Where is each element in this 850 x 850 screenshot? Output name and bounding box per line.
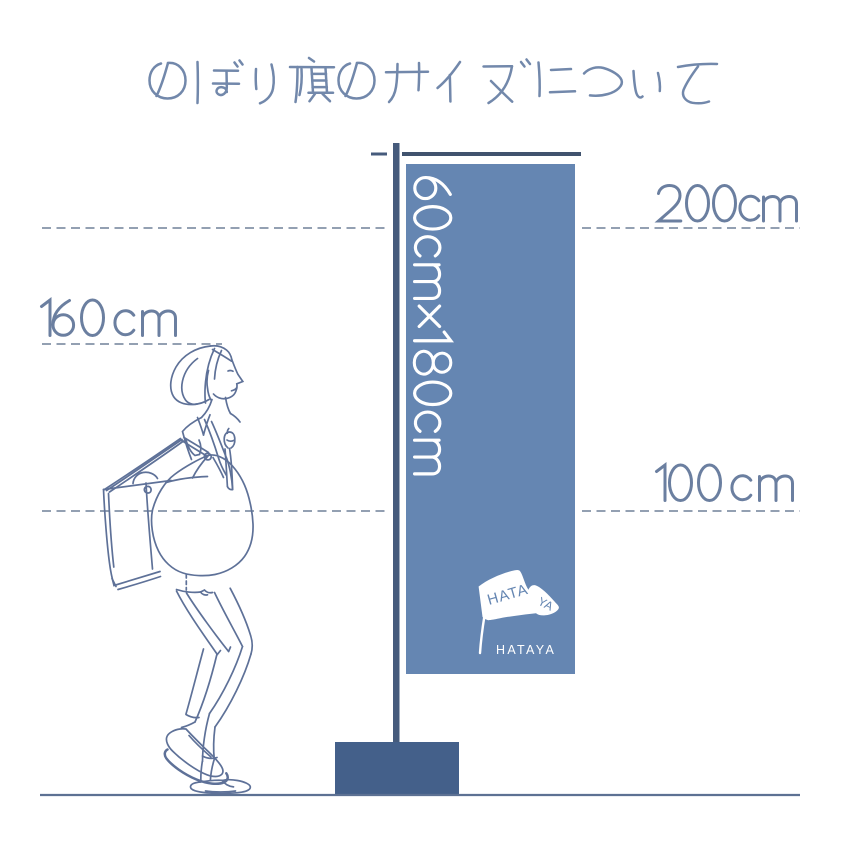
svg-text:HATAYA: HATAYA: [496, 643, 556, 657]
